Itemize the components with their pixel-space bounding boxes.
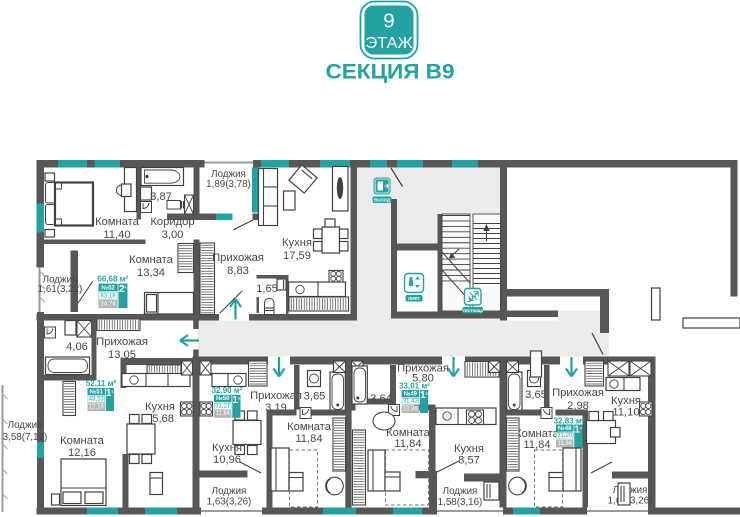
svg-text:13,86: 13,86 [403,406,419,412]
svg-text:Комната: Комната [129,254,174,266]
svg-text:Лоджия: Лоджия [212,486,247,497]
svg-text:11,84: 11,84 [394,438,421,450]
svg-text:3,00: 3,00 [162,229,184,241]
svg-text:ЛИФТ: ЛИФТ [408,296,420,301]
svg-text:32,83 м²: 32,83 м² [554,416,585,425]
svg-text:66,68 м²: 66,68 м² [97,275,128,284]
svg-text:№51: №51 [90,388,104,395]
svg-text:1,89(3,78): 1,89(3,78) [206,179,251,190]
svg-text:11,10: 11,10 [612,407,639,419]
svg-text:8,57: 8,57 [458,455,480,467]
svg-text:№52: №52 [101,284,115,291]
svg-text:3,65: 3,65 [304,391,326,403]
svg-text:31,20: 31,20 [557,433,573,439]
svg-text:31,27: 31,27 [215,404,231,410]
svg-text:17,59: 17,59 [283,250,311,262]
svg-text:12,16: 12,16 [68,447,96,459]
svg-text:3,64: 3,64 [370,393,392,405]
svg-text:Коридор: Коридор [150,216,194,228]
svg-text:1,63(3,26): 1,63(3,26) [207,497,252,508]
svg-text:11,84: 11,84 [557,441,572,447]
svg-text:11,84: 11,84 [523,439,550,451]
svg-text:Прихожая: Прихожая [212,252,264,264]
svg-text:52,11 м²: 52,11 м² [86,379,117,388]
svg-text:1,61(3,22): 1,61(3,22) [38,284,83,295]
svg-text:Комната: Комната [95,216,140,228]
svg-text:3,87: 3,87 [150,191,172,203]
svg-text:8,83: 8,83 [227,265,249,277]
svg-text:24,74: 24,74 [101,302,117,308]
svg-text:Кухня: Кухня [454,443,484,455]
svg-text:Комната: Комната [60,435,105,447]
svg-text:Прихожая: Прихожая [96,336,148,348]
svg-text:ЭТАЖ: ЭТАЖ [366,35,414,52]
svg-text:Кухня: Кухня [282,237,312,249]
svg-text:1,65: 1,65 [256,283,278,295]
svg-text:3,65: 3,65 [525,389,547,401]
svg-text:11,84: 11,84 [215,411,230,417]
svg-text:Кухня: Кухня [145,401,175,413]
svg-text:31,43: 31,43 [403,399,419,405]
svg-text:ЛЕСТНИЦА: ЛЕСТНИЦА [463,309,483,313]
svg-text:13,34: 13,34 [137,267,165,279]
svg-text:33,01 м²: 33,01 м² [399,381,430,390]
svg-text:Кухня: Кухня [212,442,242,454]
svg-text:9: 9 [383,10,394,33]
svg-text:Комната: Комната [287,421,332,433]
svg-text:63,18: 63,18 [101,293,117,299]
svg-text:№50: №50 [216,395,230,402]
svg-text:32,90 м²: 32,90 м² [212,386,243,395]
svg-text:12,16: 12,16 [89,404,105,410]
svg-text:4,06: 4,06 [66,341,88,353]
svg-text:Прихожая: Прихожая [552,387,604,399]
svg-text:11,84: 11,84 [295,433,322,445]
svg-text:Кухня: Кухня [611,395,641,407]
svg-text:3,58(7,16): 3,58(7,16) [3,432,48,443]
svg-text:СЕКЦИЯ В9: СЕКЦИЯ В9 [326,60,455,84]
svg-text:Лоджия: Лоджия [8,420,43,431]
svg-text:1,58(3,16): 1,58(3,16) [438,497,483,508]
svg-text:11,40: 11,40 [103,229,130,241]
svg-text:10,96: 10,96 [213,454,241,466]
svg-text:№49: №49 [404,390,418,397]
svg-text:ВЫХОД: ВЫХОД [374,198,390,203]
svg-text:№48: №48 [558,425,572,432]
svg-text:48,53: 48,53 [89,397,105,403]
svg-text:Лоджия: Лоджия [443,486,478,497]
